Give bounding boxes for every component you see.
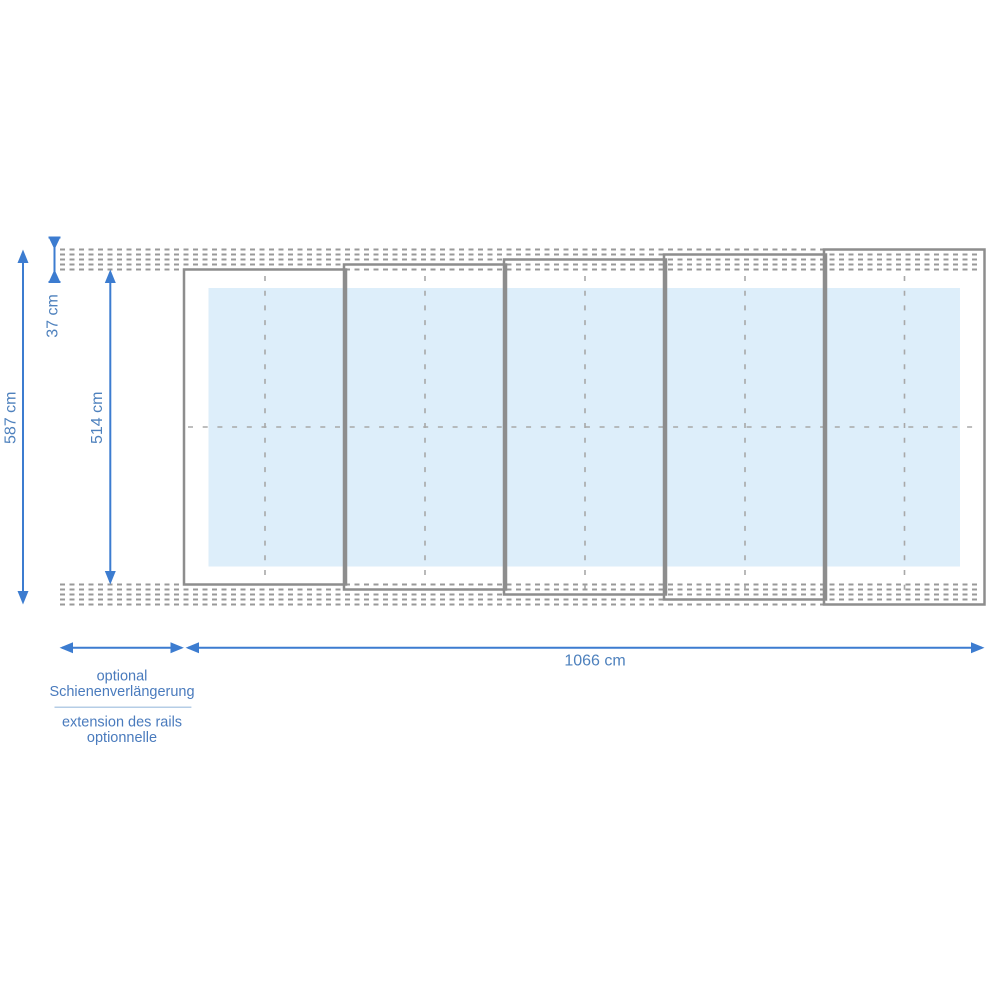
svg-text:extension des rails: extension des rails (62, 715, 182, 731)
svg-text:514 cm: 514 cm (89, 392, 106, 444)
svg-text:optionnelle: optionnelle (87, 730, 157, 746)
svg-text:Schienenverlängerung: Schienenverlängerung (49, 684, 194, 700)
svg-text:1066 cm: 1066 cm (564, 653, 625, 670)
svg-text:37 cm: 37 cm (45, 294, 62, 338)
svg-text:587 cm: 587 cm (3, 392, 20, 444)
svg-text:optional: optional (97, 669, 148, 685)
